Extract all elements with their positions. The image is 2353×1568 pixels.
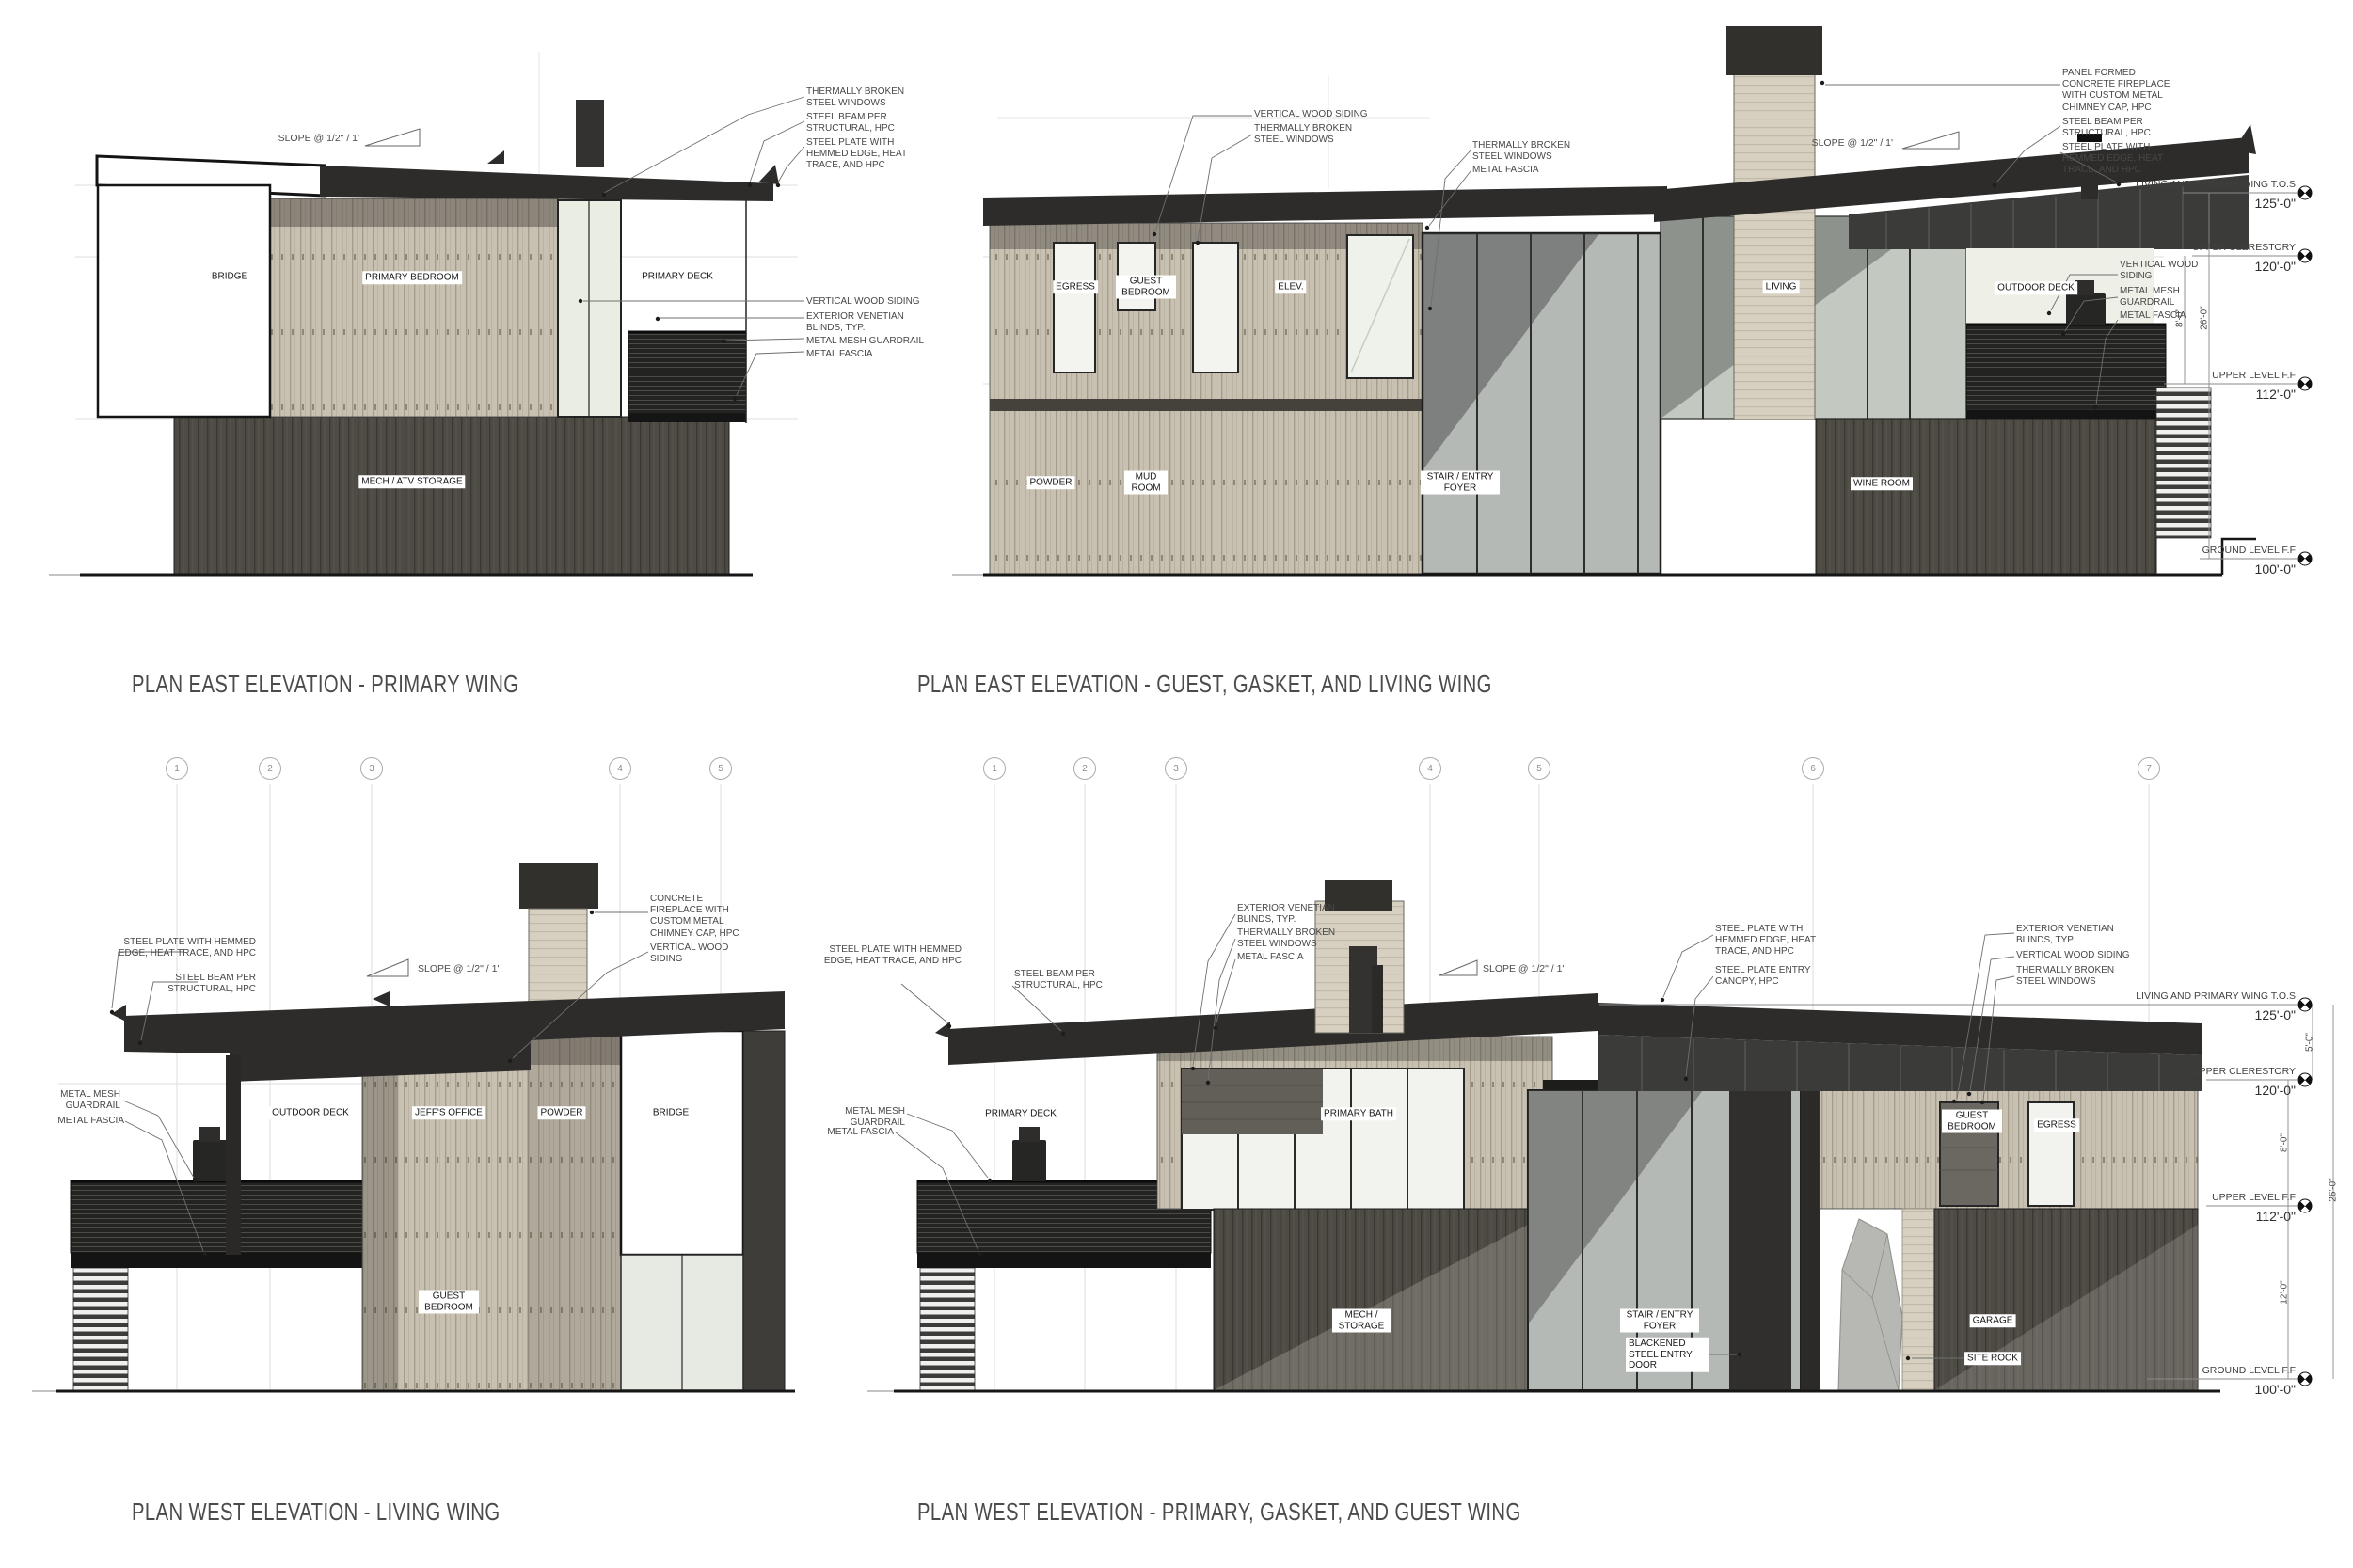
callout-metal-fascia: METAL FASCIA [1237, 952, 1350, 963]
callout-venetian-blinds: EXTERIOR VENETIAN BLINDS, TYP. [2016, 924, 2124, 946]
callout-steel-plate: STEEL PLATE WITH HEMMED EDGE, HEAT TRACE… [806, 137, 924, 172]
elevation-drawings-artwork [0, 0, 2353, 1568]
dim-5ft: 5'-0" [2305, 1033, 2315, 1052]
title-west-living-wing: PLAN WEST ELEVATION - LIVING WING [132, 1497, 500, 1527]
level-elev-clerestory: 120'-0" [2084, 1083, 2296, 1098]
slope-note: SLOPE @ 1/2" / 1' [1799, 137, 1893, 149]
dim-8ft: 8'-0" [2280, 1133, 2290, 1152]
room-label-stair-entry-foyer: STAIR / ENTRY FOYER [1421, 471, 1500, 495]
grid-bubble-3: 3 [360, 757, 383, 780]
room-label-egress: EGRESS [2034, 1118, 2079, 1132]
callout-vertical-wood-siding: VERTICAL WOOD SIDING [1254, 109, 1381, 120]
callout-metal-fascia: METAL FASCIA [2120, 310, 2209, 322]
callout-metal-fascia: METAL FASCIA [781, 1127, 894, 1138]
room-label-bridge: BRIDGE [209, 270, 250, 283]
room-label-guest-bedroom: GUEST BEDROOM [1116, 276, 1176, 299]
callout-steel-beam: STEEL BEAM PER STRUCTURAL, HPC [2062, 117, 2166, 139]
callout-blackened-steel-door: BLACKENED STEEL ENTRY DOOR [1626, 1338, 1709, 1372]
callout-metal-mesh-guardrail: METAL MESH GUARDRAIL [806, 336, 938, 347]
grid-bubble-7: 7 [2138, 757, 2160, 780]
level-name-tos: LIVING AND PRIMARY WING T.O.S [2084, 179, 2296, 190]
callout-steel-plate: STEEL PLATE WITH HEMMED EDGE, HEAT TRACE… [820, 944, 962, 967]
callout-metal-mesh-guardrail: METAL MESH GUARDRAIL [2120, 286, 2195, 309]
callout-steel-plate: STEEL PLATE WITH HEMMED EDGE, HEAT TRACE… [1715, 924, 1828, 958]
grid-bubble-4: 4 [1419, 757, 1441, 780]
room-label-mech-atv-storage: MECH / ATV STORAGE [358, 475, 465, 488]
room-label-site-rock: SITE ROCK [1964, 1352, 2021, 1365]
callout-metal-fascia: METAL FASCIA [1472, 165, 1585, 176]
level-elev-tos: 125'-0" [2084, 1007, 2296, 1022]
room-label-primary-deck: PRIMARY DECK [982, 1107, 1059, 1120]
slope-note: SLOPE @ 1/2" / 1' [418, 963, 499, 974]
room-label-primary-bedroom: PRIMARY BEDROOM [362, 271, 462, 284]
grid-bubble-5: 5 [709, 757, 732, 780]
callout-metal-fascia: METAL FASCIA [30, 1116, 124, 1127]
grid-bubble-1: 1 [983, 757, 1006, 780]
level-elev-upper: 112'-0" [2084, 1209, 2296, 1224]
room-label-mech-storage: MECH / STORAGE [1332, 1309, 1391, 1333]
callout-steel-beam: STEEL BEAM PER STRUCTURAL, HPC [1014, 969, 1118, 991]
elevation-sheet: PLAN EAST ELEVATION - PRIMARY WING PLAN … [0, 0, 2353, 1568]
title-east-guest-gasket-living: PLAN EAST ELEVATION - GUEST, GASKET, AND… [917, 670, 1492, 699]
callout-venetian-blinds: EXTERIOR VENETIAN BLINDS, TYP. [1237, 903, 1345, 926]
title-east-primary-wing: PLAN EAST ELEVATION - PRIMARY WING [132, 670, 518, 699]
callout-venetian-blinds: EXTERIOR VENETIAN BLINDS, TYP. [806, 311, 914, 334]
grid-bubble-2: 2 [259, 757, 281, 780]
room-label-stair-entry-foyer: STAIR / ENTRY FOYER [1620, 1309, 1699, 1333]
callout-thermally-broken-windows: THERMALLY BROKEN STEEL WINDOWS [1254, 123, 1362, 146]
level-name-tos: LIVING AND PRIMARY WING T.O.S [2084, 990, 2296, 1002]
level-name-ground: GROUND LEVEL F.F [2084, 1365, 2296, 1376]
room-label-living: LIVING [1763, 280, 1800, 293]
level-name-clerestory: UPPER CLERESTORY [2084, 1066, 2296, 1077]
level-name-clerestory: UPPER CLERESTORY [2084, 242, 2296, 253]
room-label-jeffs-office: JEFF'S OFFICE [412, 1106, 485, 1119]
room-label-guest-bedroom: GUEST BEDROOM [1942, 1110, 2002, 1133]
callout-steel-beam: STEEL BEAM PER STRUCTURAL, HPC [806, 112, 924, 135]
level-elev-clerestory: 120'-0" [2084, 259, 2296, 274]
room-label-bridge: BRIDGE [650, 1106, 692, 1119]
callout-steel-plate: STEEL PLATE WITH HEMMED EDGE, HEAT TRACE… [115, 937, 256, 959]
room-label-elev: ELEV. [1275, 280, 1306, 293]
callout-concrete-fireplace: CONCRETE FIREPLACE WITH CUSTOM METAL CHI… [650, 894, 754, 940]
callout-thermally-broken-windows: THERMALLY BROKEN STEEL WINDOWS [1237, 927, 1345, 950]
room-label-outdoor-deck: OUTDOOR DECK [269, 1106, 352, 1119]
dim-12ft: 12'-0" [2280, 1280, 2290, 1304]
room-label-garage: GARAGE [1970, 1314, 2016, 1327]
title-west-primary-gasket-guest: PLAN WEST ELEVATION - PRIMARY, GASKET, A… [917, 1497, 1521, 1527]
room-label-egress: EGRESS [1053, 280, 1098, 293]
callout-metal-mesh-guardrail: METAL MESH GUARDRAIL [792, 1106, 905, 1129]
grid-bubble-5: 5 [1528, 757, 1550, 780]
grid-bubble-4: 4 [609, 757, 631, 780]
room-label-wine-room: WINE ROOM [1851, 477, 1913, 490]
level-elev-ground: 100'-0" [2084, 1382, 2296, 1397]
callout-thermally-broken-windows: THERMALLY BROKEN STEEL WINDOWS [2016, 965, 2124, 988]
room-label-powder: POWDER [1027, 476, 1075, 489]
grid-bubble-3: 3 [1165, 757, 1187, 780]
room-label-outdoor-deck: OUTDOOR DECK [1995, 281, 2077, 294]
slope-note: SLOPE @ 1/2" / 1' [273, 133, 359, 144]
room-label-guest-bedroom: GUEST BEDROOM [419, 1291, 479, 1314]
callout-metal-fascia: METAL FASCIA [806, 349, 938, 360]
callout-steel-plate-entry-canopy: STEEL PLATE ENTRY CANOPY, HPC [1715, 965, 1823, 988]
dim-8ft: 8'-0" [2175, 309, 2186, 327]
callout-thermally-broken-windows: THERMALLY BROKEN STEEL WINDOWS [1472, 140, 1581, 163]
room-label-primary-bath: PRIMARY BATH [1321, 1107, 1396, 1120]
level-name-upper: UPPER LEVEL F.F [2084, 370, 2296, 381]
slope-note: SLOPE @ 1/2" / 1' [1483, 963, 1564, 974]
callout-metal-mesh-guardrail: METAL MESH GUARDRAIL [36, 1089, 120, 1112]
dim-26ft: 26'-0" [2200, 306, 2210, 329]
level-elev-tos: 125'-0" [2084, 196, 2296, 211]
dim-26ft: 26'-0" [2329, 1178, 2339, 1201]
room-label-powder: POWDER [538, 1106, 586, 1119]
level-name-ground: GROUND LEVEL F.F [2084, 545, 2296, 556]
callout-vertical-wood-siding: VERTICAL WOOD SIDING [650, 942, 739, 965]
grid-bubble-1: 1 [166, 757, 188, 780]
level-elev-upper: 112'-0" [2084, 387, 2296, 402]
callout-steel-beam: STEEL BEAM PER STRUCTURAL, HPC [143, 973, 256, 995]
level-name-upper: UPPER LEVEL F.F [2084, 1192, 2296, 1203]
callout-thermally-broken-windows: THERMALLY BROKEN STEEL WINDOWS [806, 87, 924, 109]
level-elev-ground: 100'-0" [2084, 562, 2296, 577]
room-label-mud-room: MUD ROOM [1124, 471, 1168, 495]
room-label-primary-deck: PRIMARY DECK [639, 270, 716, 283]
callout-vertical-wood-siding: VERTICAL WOOD SIDING [806, 296, 938, 308]
grid-bubble-6: 6 [1802, 757, 1824, 780]
callout-vertical-wood-siding: VERTICAL WOOD SIDING [2016, 950, 2148, 961]
callout-steel-plate: STEEL PLATE WITH HEMMED EDGE, HEAT TRACE… [2062, 142, 2175, 177]
callout-panel-formed-fireplace: PANEL FORMED CONCRETE FIREPLACE WITH CUS… [2062, 68, 2175, 114]
grid-bubble-2: 2 [1073, 757, 1096, 780]
